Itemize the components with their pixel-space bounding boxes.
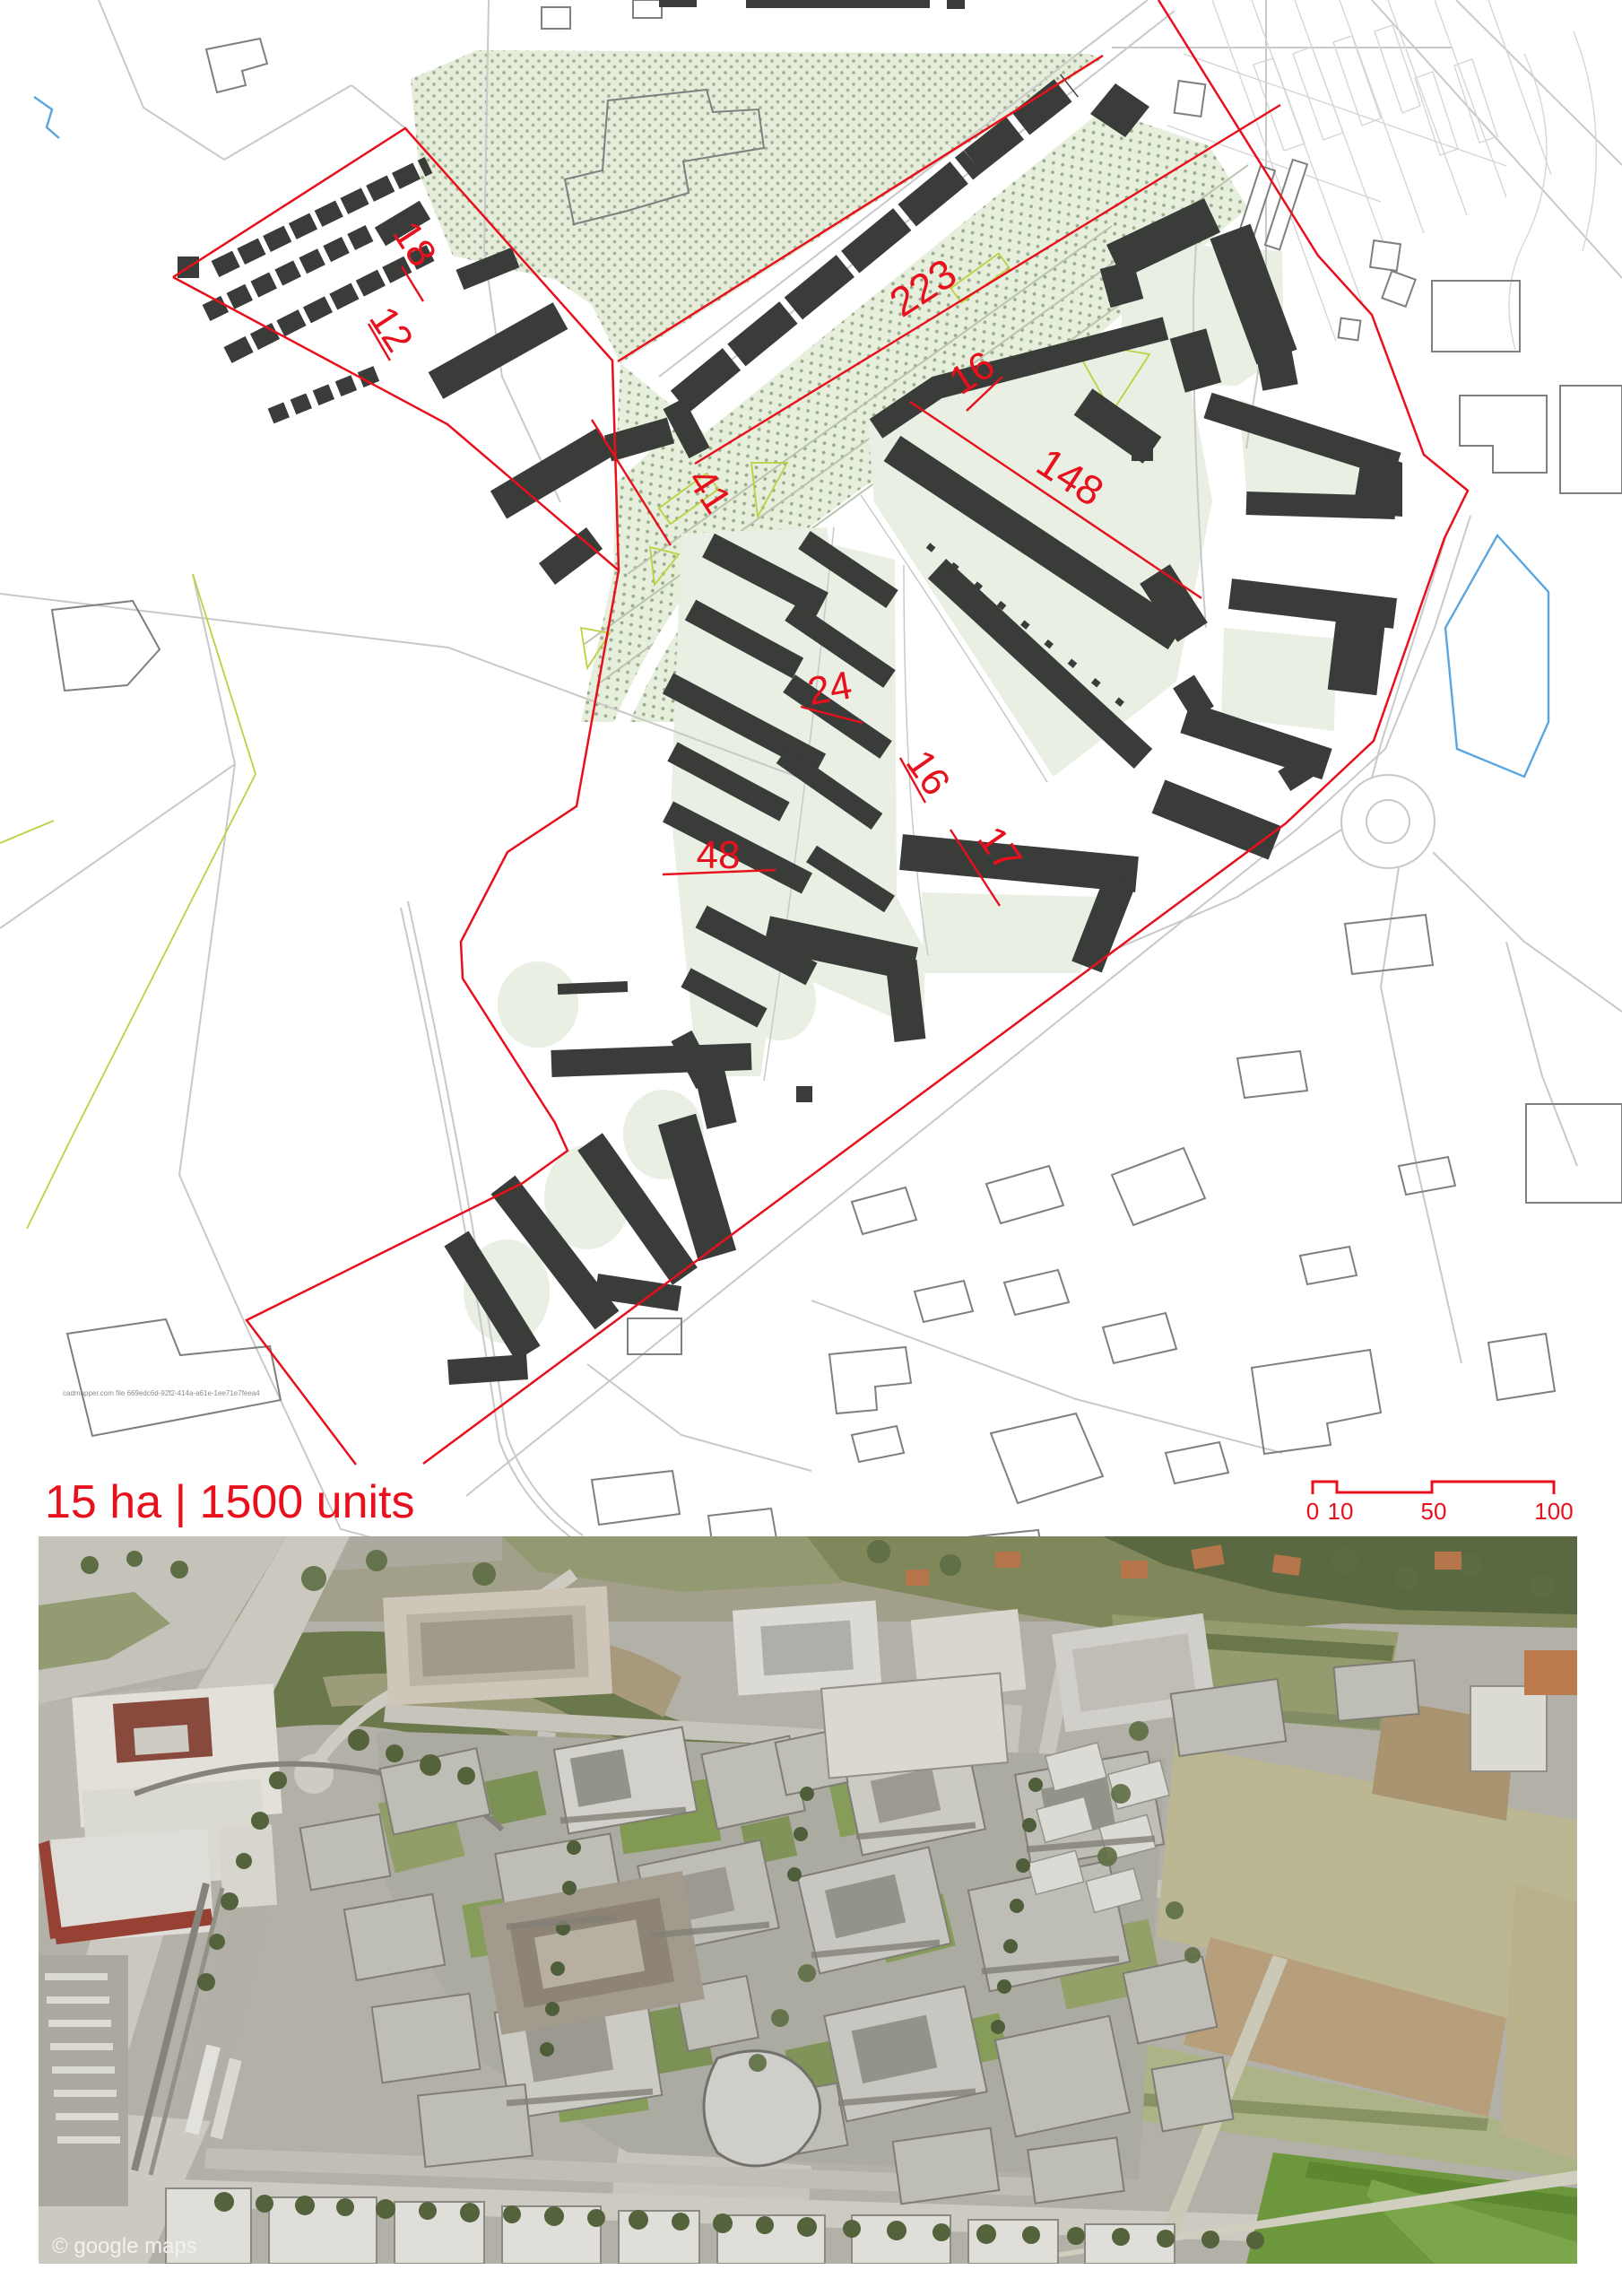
svg-text:cadmapper.com file 669edc6d-92: cadmapper.com file 669edc6d-92f2-414a-a6… xyxy=(63,1389,260,1397)
svg-text:10: 10 xyxy=(1328,1498,1354,1525)
svg-text:48: 48 xyxy=(697,833,741,877)
svg-text:100: 100 xyxy=(1534,1498,1573,1525)
svg-text:50: 50 xyxy=(1421,1498,1447,1525)
svg-text:15 ha | 1500 units: 15 ha | 1500 units xyxy=(45,1476,415,1528)
svg-text:© google maps: © google maps xyxy=(52,2234,197,2258)
svg-text:24: 24 xyxy=(804,663,855,714)
svg-text:0: 0 xyxy=(1306,1498,1319,1525)
